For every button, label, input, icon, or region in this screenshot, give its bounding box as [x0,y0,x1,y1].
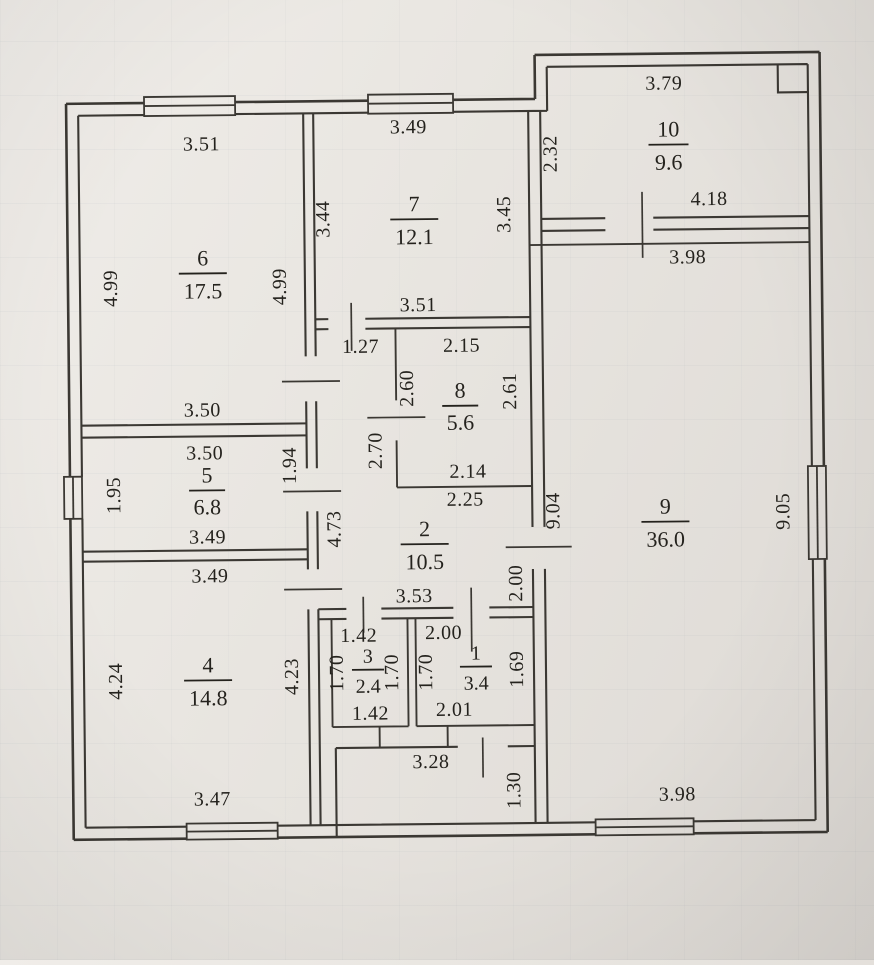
door-tick-room4 [284,589,342,590]
dim-room2-left: 4.73 [323,510,345,547]
window-room7-top [368,94,453,114]
dimension-labels-horizontal: 3.51 3.49 3.79 4.18 3.98 3.51 1.27 2.15 … [180,72,734,811]
dim-room5-left: 1.95 [103,477,125,514]
room-9-area: 36.0 [646,526,685,551]
dim-room2-upper-left: 2.70 [364,432,386,469]
dim-porch-right: 1.30 [503,772,525,809]
floorplan-drawing: 6 17.5 7 12.1 10 9.6 8 5.6 [0,0,874,965]
door-tick-room5 [283,491,341,492]
dim-porch-top: 3.28 [412,751,449,773]
wall-room9-top [530,242,810,245]
dim-room5-top: 3.50 [186,442,223,464]
room-2-number: 2 [419,516,430,541]
room-7-label: 7 12.1 [390,191,439,249]
window-room4-bottom [187,823,278,840]
room-6-label: 6 17.5 [179,245,228,303]
dim-room1-left: 1.70 [415,654,437,691]
dim-room2-bottom: 3.53 [396,585,433,607]
dim-room3-left: 1.70 [326,654,348,691]
door-tick-room6 [282,381,340,382]
dim-room6-bottom: 3.50 [184,399,221,421]
wall-room7-bottom [315,317,530,329]
room-8-area: 5.6 [447,410,475,435]
dim-hall-door: 1.27 [342,336,379,358]
dim-room7-right: 3.45 [493,196,515,233]
room-5-label: 5 6.8 [189,462,226,519]
wall-hall-bottom [318,607,533,619]
room-3-number: 3 [363,646,373,668]
room-6-number: 6 [197,245,208,270]
dim-room6-right: 4.99 [269,268,291,305]
door-tick-room8 [367,417,425,418]
dim-room5-bottom: 3.49 [189,526,226,548]
dim-room10-left: 2.32 [539,135,561,172]
room-5-number: 5 [201,462,212,487]
room-7-number: 7 [408,191,419,216]
floorplan-sheet: 6 17.5 7 12.1 10 9.6 8 5.6 [0,0,874,965]
dim-room1-bottom: 2.01 [436,699,473,721]
window-room9-right [808,466,827,559]
room-6-area: 17.5 [184,278,223,303]
exterior-wall-outer [66,52,828,840]
room-4-area: 14.8 [189,685,228,710]
dim-room3-right: 1.70 [381,654,403,691]
dim-room8-bottom: 2.14 [449,460,486,482]
room-10-area: 9.6 [655,149,683,174]
room-1-number: 1 [471,643,481,665]
dim-room3-bottom: 1.42 [352,703,389,725]
room-7-area: 12.1 [395,224,434,249]
wall-room10-bottom [541,216,809,231]
dim-room2-top: 2.25 [447,489,484,511]
room-9-divider [641,521,689,522]
room-4-divider [184,680,232,681]
dim-room9-bottom: 3.98 [659,783,696,805]
room-9-label: 9 36.0 [641,493,690,551]
dim-room4-left: 4.24 [105,663,127,700]
dim-room7-bottom: 3.51 [400,294,437,316]
dim-room5-right: 1.94 [279,447,301,484]
dim-room4-bottom: 3.47 [194,788,231,810]
room-2-divider [401,544,449,545]
window-room6-top [144,96,235,116]
wall-porch-jambs [380,726,448,748]
dim-room6-left: 4.99 [100,270,122,307]
room-10-number: 10 [657,116,679,141]
dim-room10-top: 3.79 [645,72,682,94]
dim-room6-top: 3.51 [183,133,220,155]
corner-notch [778,64,808,92]
dim-room2-right: 2.00 [505,565,527,602]
dim-room7-left: 3.44 [312,201,334,238]
interior-walls [78,108,816,840]
dim-room9-right: 9.05 [772,493,794,530]
room-9-number: 9 [660,494,671,519]
dim-room3-top: 1.42 [340,625,377,647]
room-5-area: 6.8 [193,494,221,519]
room-4-label: 4 14.8 [184,652,233,710]
dim-room1-top: 2.00 [425,622,462,644]
room-8-number: 8 [454,378,465,403]
floorplan-photo: 6 17.5 7 12.1 10 9.6 8 5.6 [0,0,874,960]
room-4-number: 4 [202,652,213,677]
dim-room9-left: 9.04 [542,492,564,529]
dim-room8-left: 2.60 [396,370,418,407]
room-2-label: 2 10.5 [400,516,449,574]
room-1-label: 1 3.4 [460,642,493,694]
room-1-area: 3.4 [464,672,489,694]
room-3-area: 2.4 [356,676,381,698]
window-room9-bottom [596,818,694,835]
dim-room10-door: 4.18 [690,188,727,210]
room-2-area: 10.5 [405,549,444,574]
door-tick-room9 [506,547,572,548]
dim-room8-right: 2.61 [499,373,521,410]
room-10-label: 10 9.6 [648,116,689,174]
wall-right-spine [528,111,547,823]
wall-room5-room4 [83,549,308,561]
dim-room4-top: 3.49 [191,565,228,587]
room-6-divider [179,273,227,274]
room-7-divider [390,219,438,220]
dim-room4-right: 4.23 [281,658,303,695]
dim-room8-top: 2.15 [443,335,480,357]
exterior-outer-line [66,52,828,840]
wall-room6-room5 [81,423,306,437]
room-3-label: 3 2.4 [352,646,385,698]
window-room5-left [64,477,82,519]
door-tick-room10 [642,192,643,258]
dim-room7-top: 3.49 [390,116,427,138]
dim-room9-top: 3.98 [669,246,706,268]
room-8-label: 8 5.6 [442,378,479,435]
dim-room1-right: 1.69 [506,651,528,688]
